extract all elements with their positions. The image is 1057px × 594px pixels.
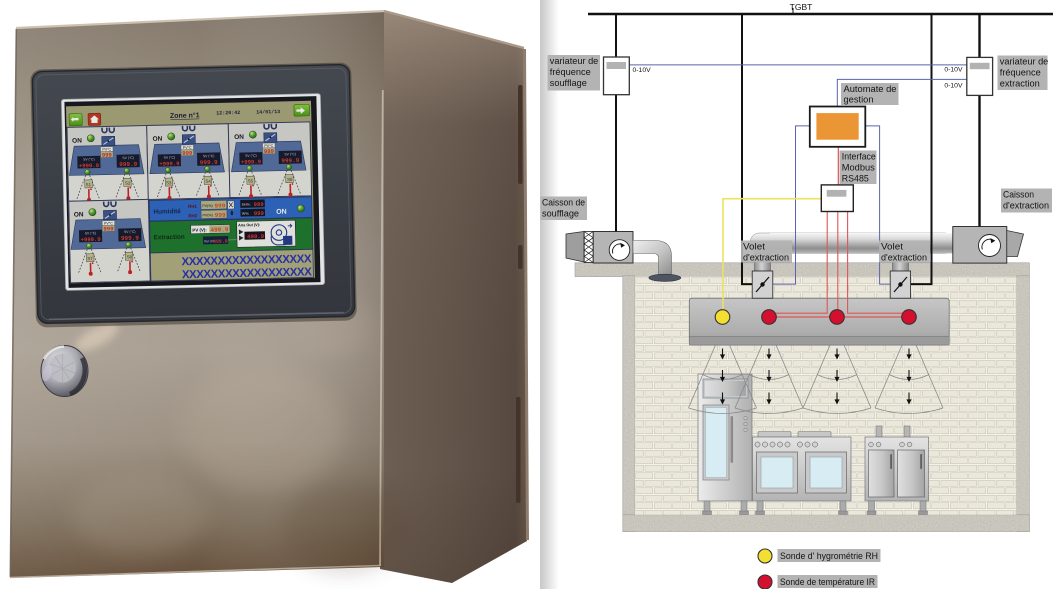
svg-text:d'extraction: d'extraction [1003, 201, 1049, 212]
svg-text:soufflage: soufflage [550, 78, 587, 89]
svg-text:variateur de: variateur de [550, 56, 599, 67]
svg-text:RS485: RS485 [842, 174, 869, 185]
svg-text:variateur de: variateur de [1000, 57, 1049, 68]
svg-text:0-10V: 0-10V [944, 82, 963, 89]
svg-text:Modbus: Modbus [842, 163, 875, 174]
svg-text:d'extraction: d'extraction [881, 253, 927, 264]
svg-text:Volet: Volet [881, 242, 903, 253]
svg-text:Interface: Interface [842, 152, 876, 163]
svg-text:Sonde d' hygrométrie RH: Sonde d' hygrométrie RH [780, 551, 878, 562]
svg-text:Caisson de: Caisson de [542, 198, 585, 209]
svg-text:fréquence: fréquence [550, 67, 591, 78]
svg-text:0-10V: 0-10V [944, 66, 963, 73]
svg-text:Volet: Volet [743, 242, 765, 253]
svg-text:TGBT: TGBT [790, 2, 813, 12]
svg-text:d'extraction: d'extraction [743, 253, 789, 264]
svg-text:0-10V: 0-10V [633, 67, 652, 74]
svg-text:Sonde de température IR: Sonde de température IR [780, 577, 875, 588]
svg-text:Caisson: Caisson [1003, 190, 1034, 201]
svg-text:soufflage: soufflage [542, 209, 579, 220]
svg-text:gestion: gestion [844, 95, 874, 106]
svg-text:fréquence: fréquence [1000, 68, 1041, 79]
svg-text:Automate de: Automate de [844, 84, 897, 95]
svg-text:extraction: extraction [1000, 79, 1040, 90]
